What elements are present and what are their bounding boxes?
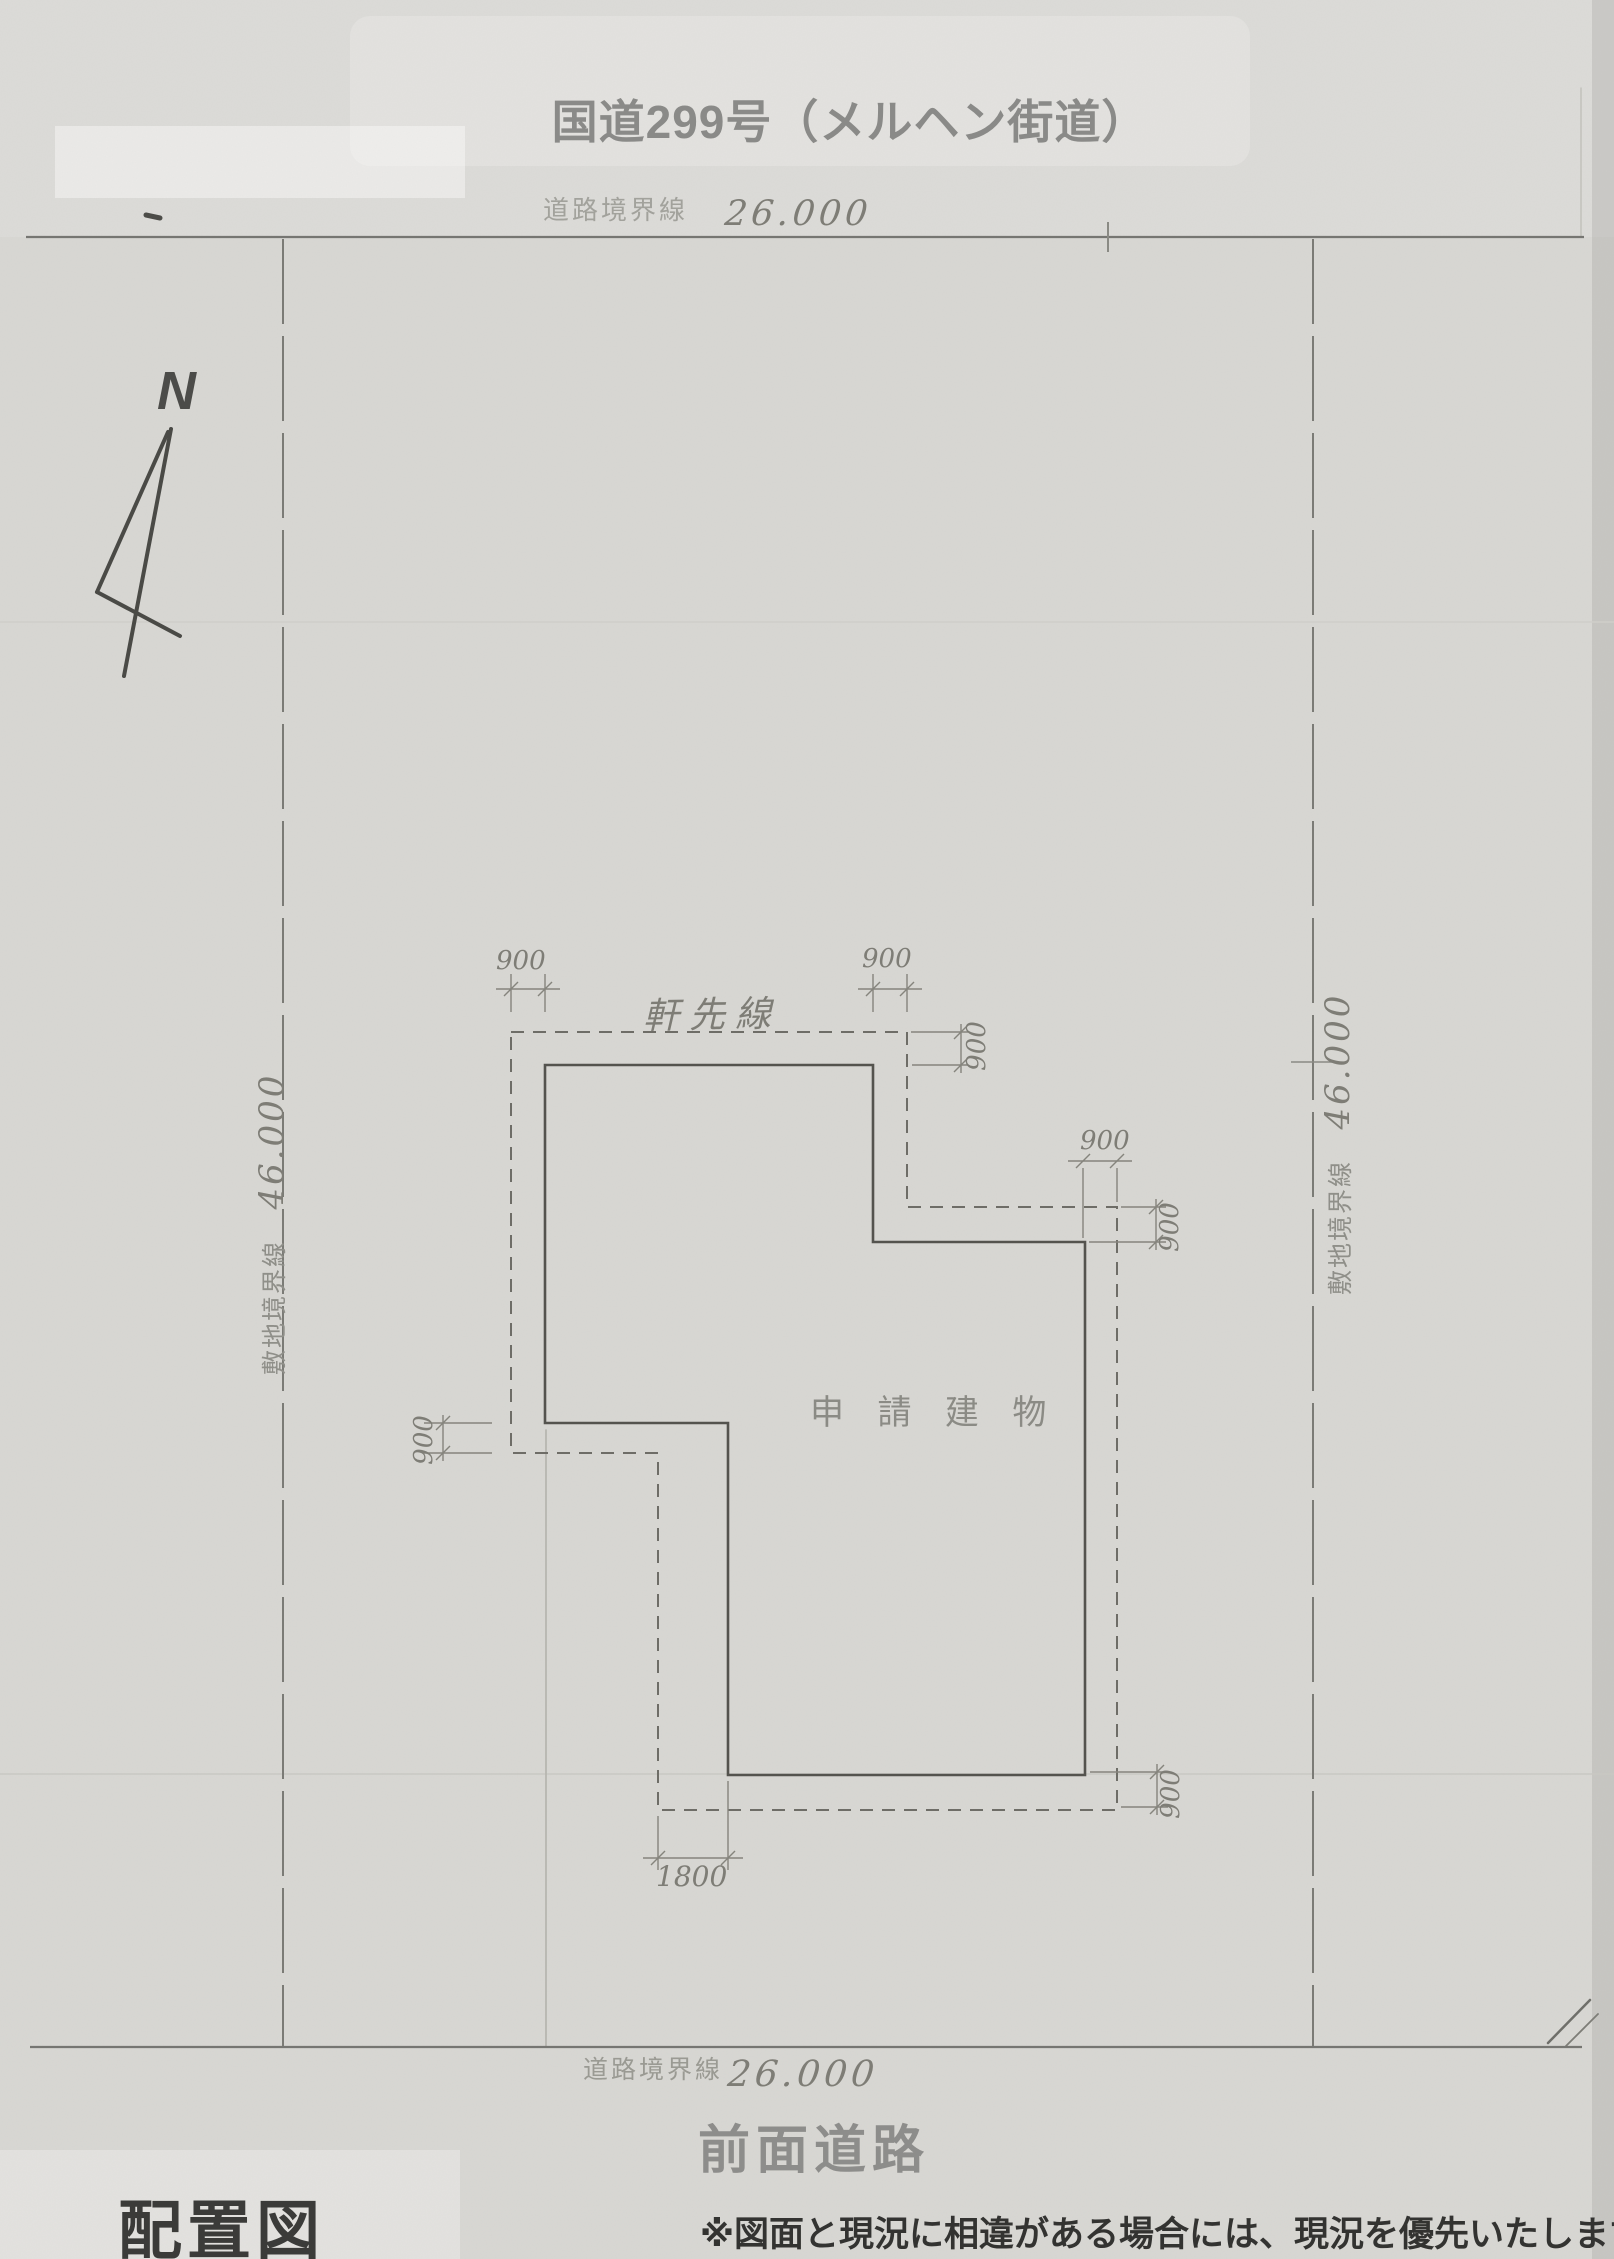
ink-speck-topleft xyxy=(146,215,160,218)
bottom-road-boundary-value: 26.000 xyxy=(726,2054,880,2095)
eaves-line-label: 軒先線 xyxy=(643,985,782,1039)
road-title: 国道299号（メルヘン街道） xyxy=(435,86,1265,152)
left-site-boundary-label: 敷地境界線 xyxy=(261,1240,289,1375)
bottom-road-boundary-label: 道路境界線 xyxy=(583,2050,723,2086)
drawing-layer xyxy=(0,0,1614,2259)
dim-text-bottom-width: 1800 xyxy=(656,1860,727,1893)
dim-text-notch-height: 900 xyxy=(1155,1192,1185,1262)
top-road-boundary-value: 26.000 xyxy=(723,194,874,234)
right-site-boundary-annotation: 敷地境界線 46.000 xyxy=(1318,885,1358,1445)
discrepancy-note: ※図面と現況に相違がある場合には、現況を優先いたします xyxy=(700,2206,1614,2257)
north-label: N xyxy=(157,360,196,422)
dim-text-left-step: 900 xyxy=(409,1405,439,1475)
left-site-boundary-annotation: 敷地境界線 46.000 xyxy=(252,965,292,1525)
front-road-label: 前面道路 xyxy=(698,2108,930,2183)
drawing-title: 配置図 xyxy=(118,2180,325,2259)
dim-text-bottom-right: 900 xyxy=(1156,1759,1186,1829)
paper-noise-texture xyxy=(0,0,1614,2259)
left-site-boundary-value: 46.000 xyxy=(252,1073,292,1210)
site-plan-scan: 国道299号（メルヘン街道） 道路境界線 26.000 N 敷地境界線 46.0… xyxy=(0,0,1614,2259)
dim-text-top-left: 900 xyxy=(496,946,546,976)
building-label: 申 請 建 物 xyxy=(810,1385,1058,1434)
top-road-boundary-label: 道路境界線 xyxy=(543,190,688,227)
right-site-boundary-label: 敷地境界線 xyxy=(1327,1160,1355,1295)
right-site-boundary-value: 46.000 xyxy=(1318,993,1358,1130)
dim-text-top-right: 900 xyxy=(862,944,912,974)
dim-text-notch-width: 900 xyxy=(1080,1126,1130,1156)
dim-text-upper-right: 900 xyxy=(962,1011,992,1081)
